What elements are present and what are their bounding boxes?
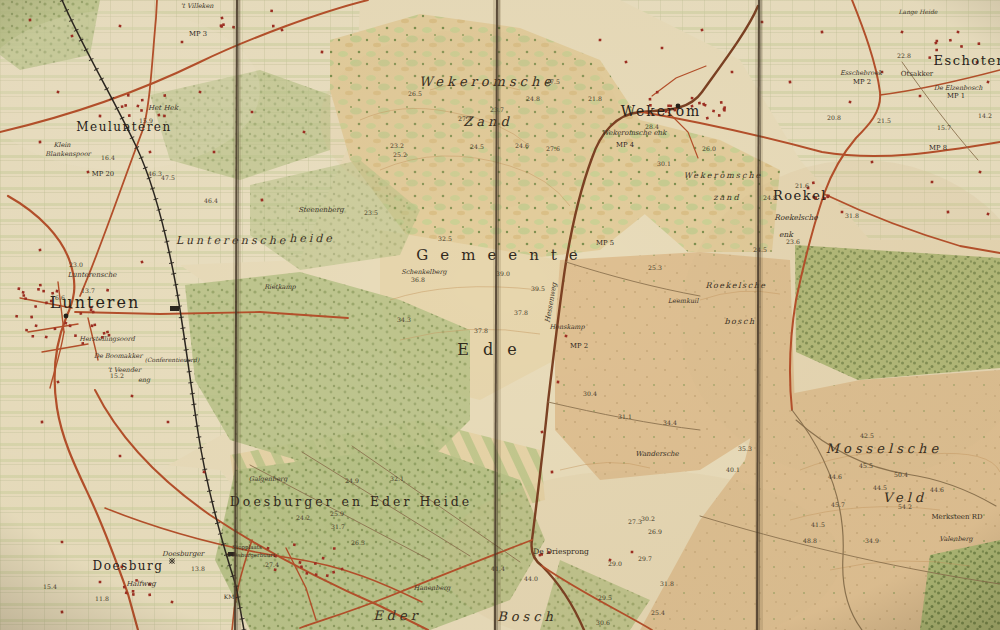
historical-topographic-map: MeulunterenKleinBlankenspoorHet Hek't Vi… <box>0 0 1000 630</box>
photo-vignette <box>0 0 1000 630</box>
map-canvas: MeulunterenKleinBlankenspoorHet Hek't Vi… <box>0 0 1000 630</box>
